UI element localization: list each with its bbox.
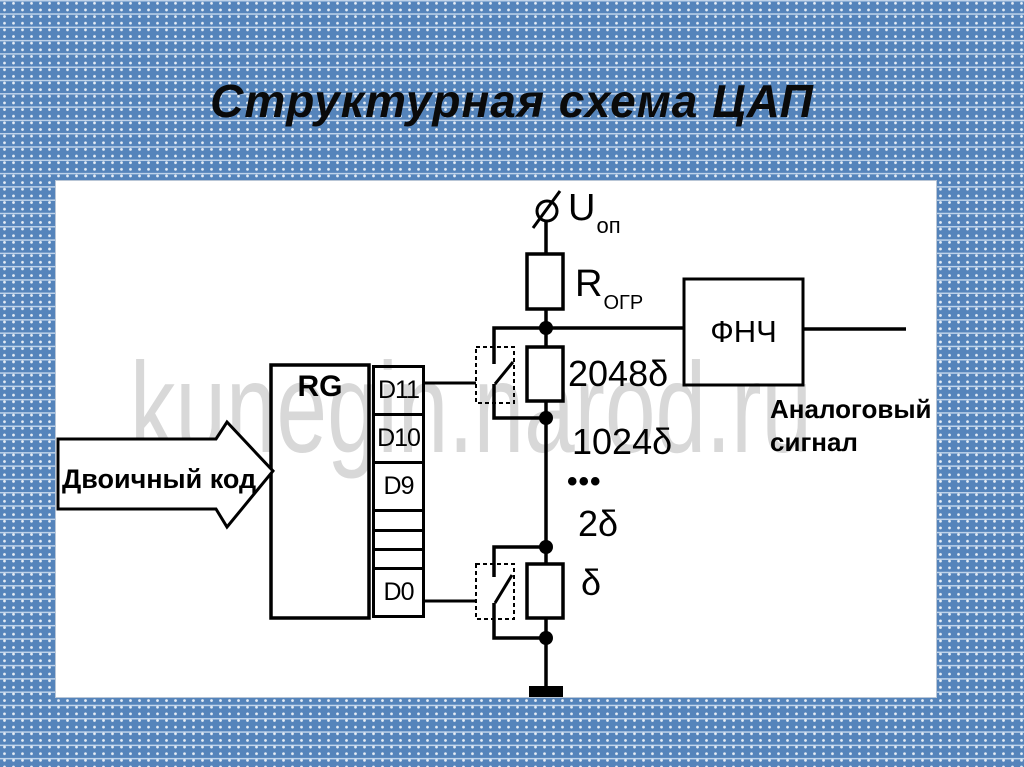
register-bit-cells: D11 D10 D9 D0 [372, 365, 425, 618]
slide: { "title": "Структурная схема ЦАП", "wat… [0, 0, 1024, 767]
bit-cell-d0: D0 [372, 567, 425, 618]
reference-voltage-base: U [568, 187, 595, 229]
ladder-ellipsis: ••• [567, 465, 602, 499]
resistor-2048 [527, 347, 563, 401]
analog-signal-label: Аналоговый сигнал [770, 393, 932, 459]
bit-cell-d9: D9 [372, 461, 425, 512]
slide-title: Структурная схема ЦАП [0, 74, 1024, 128]
analog-signal-line2: сигнал [770, 426, 932, 459]
limiting-resistor [527, 254, 563, 309]
resistor-2048-label: 2048δ [568, 353, 668, 395]
limiting-resistor-label: RОГР [575, 263, 642, 311]
resistor-1-label: δ [581, 562, 601, 604]
diagram-panel: kunegin.narod.ru [55, 180, 937, 698]
resistor-1 [527, 564, 563, 618]
bit-cell-d10: D10 [372, 413, 425, 464]
ground-icon [529, 686, 563, 697]
resistor-1024-label: 1024δ [572, 421, 672, 463]
resistor-2-label: 2δ [578, 503, 618, 545]
control-wires [425, 383, 476, 601]
reference-voltage-label: Uоп [568, 187, 620, 235]
binary-code-label: Двоичный код [62, 464, 262, 495]
limiting-resistor-sub: ОГР [603, 292, 643, 314]
analog-signal-line1: Аналоговый [770, 393, 932, 426]
reference-voltage-sub: оп [596, 213, 620, 238]
limiting-resistor-base: R [575, 263, 602, 305]
bit-cell-d11: D11 [372, 365, 425, 416]
register-label: RG [271, 370, 369, 404]
filter-label: ФНЧ [684, 279, 803, 385]
